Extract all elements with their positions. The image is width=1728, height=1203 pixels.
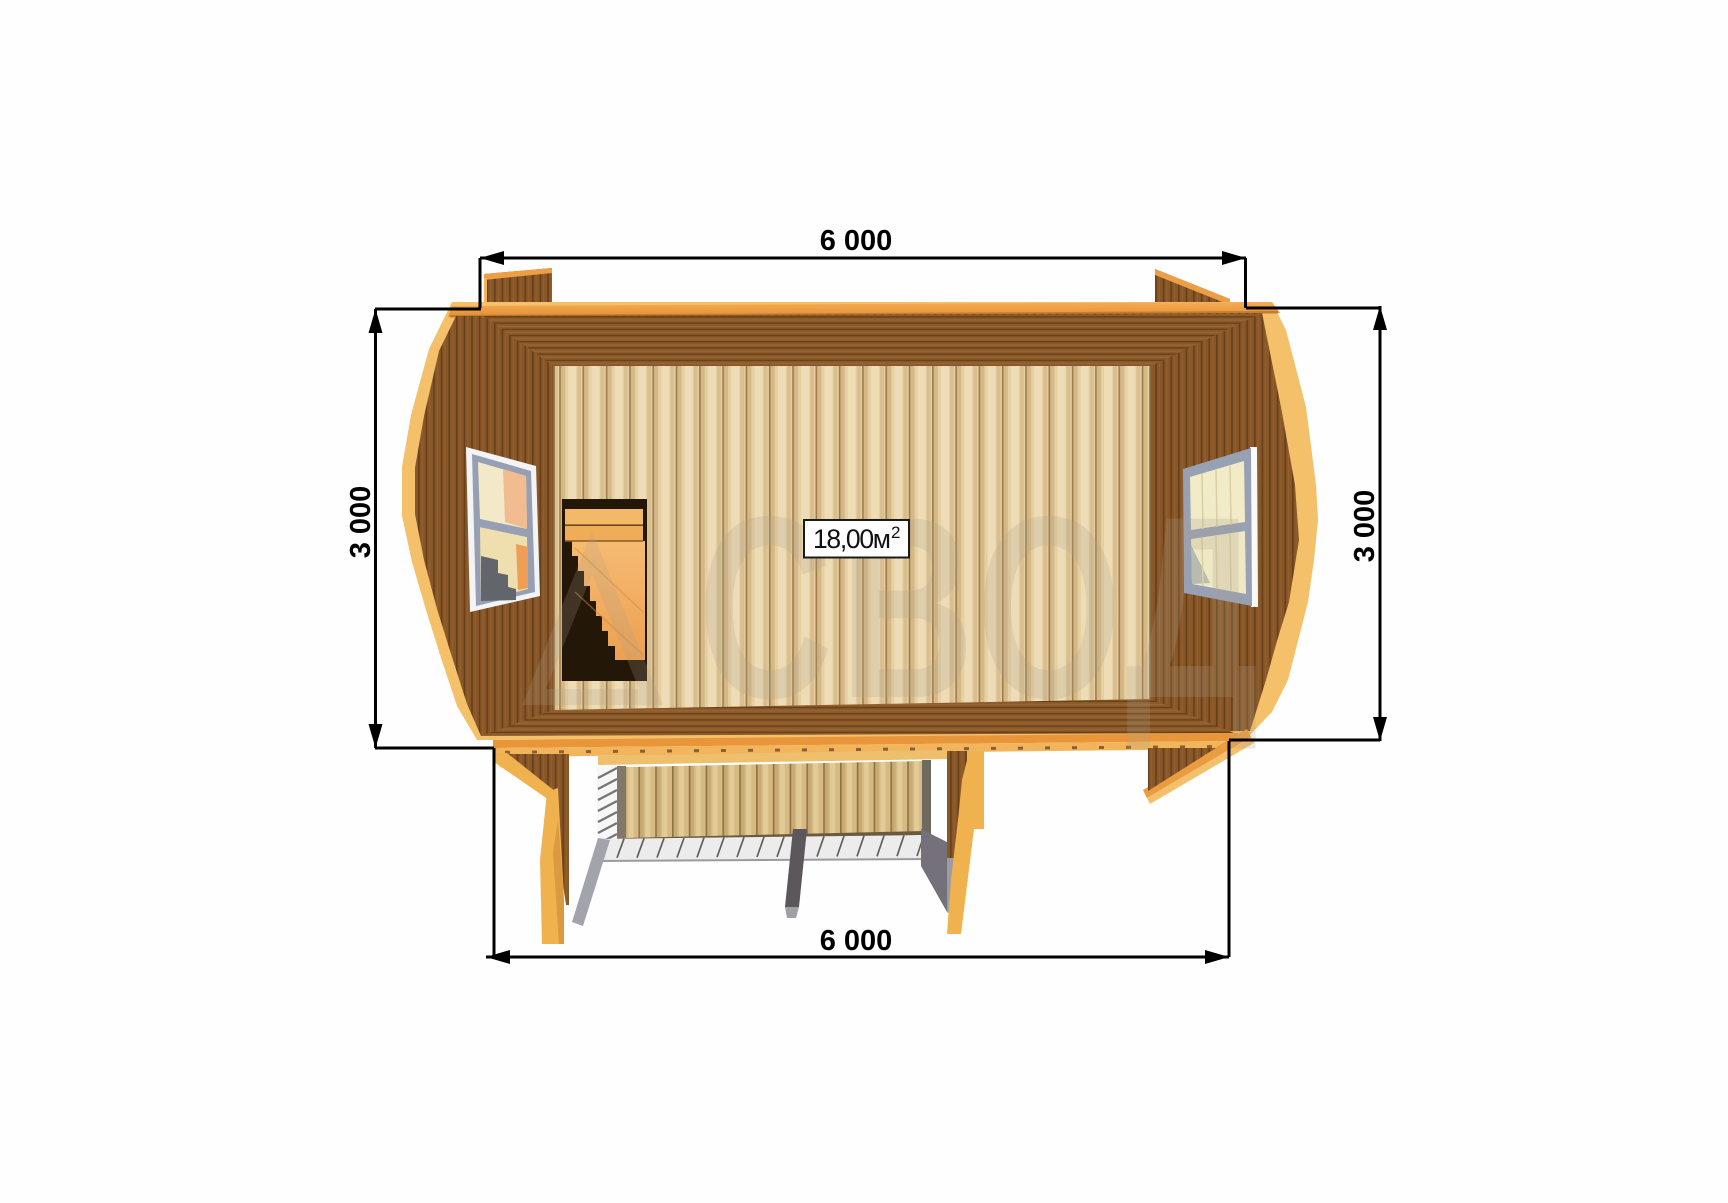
svg-text:18,00м: 18,00м xyxy=(813,524,891,554)
svg-text:СВОД: СВОД xyxy=(698,462,1265,752)
svg-text:3 000: 3 000 xyxy=(345,486,377,559)
svg-text:2: 2 xyxy=(891,523,900,542)
svg-text:6 000: 6 000 xyxy=(820,225,893,257)
svg-text:3 000: 3 000 xyxy=(1349,490,1381,563)
svg-text:6 000: 6 000 xyxy=(820,925,893,957)
